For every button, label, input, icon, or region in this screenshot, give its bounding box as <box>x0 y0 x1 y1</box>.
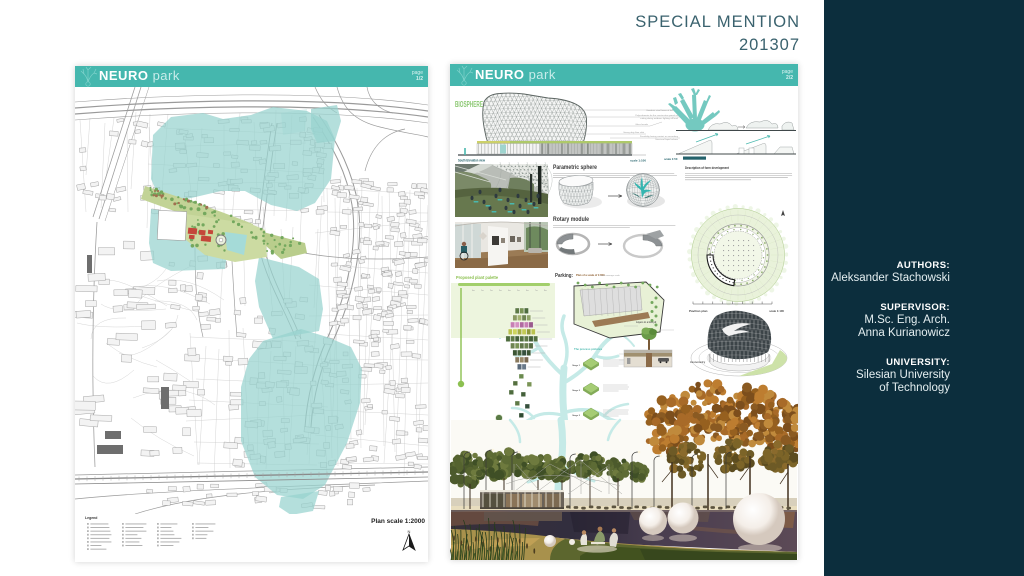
svg-text:Stage 3: Stage 3 <box>572 414 581 417</box>
svg-text:0m: 0m <box>472 290 475 292</box>
svg-text:Structural liquid column: Structural liquid column <box>655 138 679 141</box>
svg-text:Stage 2: Stage 2 <box>572 389 581 392</box>
svg-text:6m: 6m <box>526 290 529 292</box>
svg-text:South Elevation view: South Elevation view <box>458 159 485 163</box>
svg-text:Rotary module: Rotary module <box>553 217 590 223</box>
svg-text:Heavy duty floor slab: Heavy duty floor slab <box>624 131 645 134</box>
svg-text:1m: 1m <box>481 290 484 292</box>
svg-text:8m: 8m <box>544 290 547 292</box>
svg-text:The process pictures: The process pictures <box>574 347 603 351</box>
svg-text:5m: 5m <box>517 290 520 292</box>
svg-text:Pavilion plan: Pavilion plan <box>689 309 708 313</box>
svg-text:scale 1:100: scale 1:100 <box>630 159 646 163</box>
svg-text:Glass facade: Glass facade <box>635 124 649 126</box>
svg-text:7m: 7m <box>535 290 538 292</box>
svg-text:Polycarbonate for the construc: Polycarbonate for the construction panel… <box>635 114 678 117</box>
svg-text:Possibility having contact on: Possibility having contact on secondary <box>640 135 679 138</box>
svg-text:cutting during outdoors lighti: cutting during outdoors lighting off lev… <box>640 117 678 120</box>
svg-text:2m: 2m <box>490 290 493 292</box>
svg-text:Stage 1: Stage 1 <box>572 364 581 367</box>
svg-text:Description of form developmen: Description of form development <box>685 166 730 170</box>
svg-text:3m: 3m <box>499 290 502 292</box>
svg-text:on an average scale: on an average scale <box>600 274 620 277</box>
svg-text:scale 1:50: scale 1:50 <box>664 157 678 161</box>
svg-text:scale 1:100: scale 1:100 <box>769 309 784 313</box>
svg-text:Axonometry: Axonometry <box>690 360 706 364</box>
svg-text:Layers in a tree pit: Layers in a tree pit <box>636 321 657 324</box>
svg-text:Proposed plant palette: Proposed plant palette <box>456 275 498 281</box>
svg-text:Parametric sphere: Parametric sphere <box>553 165 598 171</box>
svg-text:BIOSPHERE: BIOSPHERE <box>455 100 483 109</box>
svg-text:4m: 4m <box>508 290 511 292</box>
svg-text:Parking:: Parking: <box>555 273 573 279</box>
